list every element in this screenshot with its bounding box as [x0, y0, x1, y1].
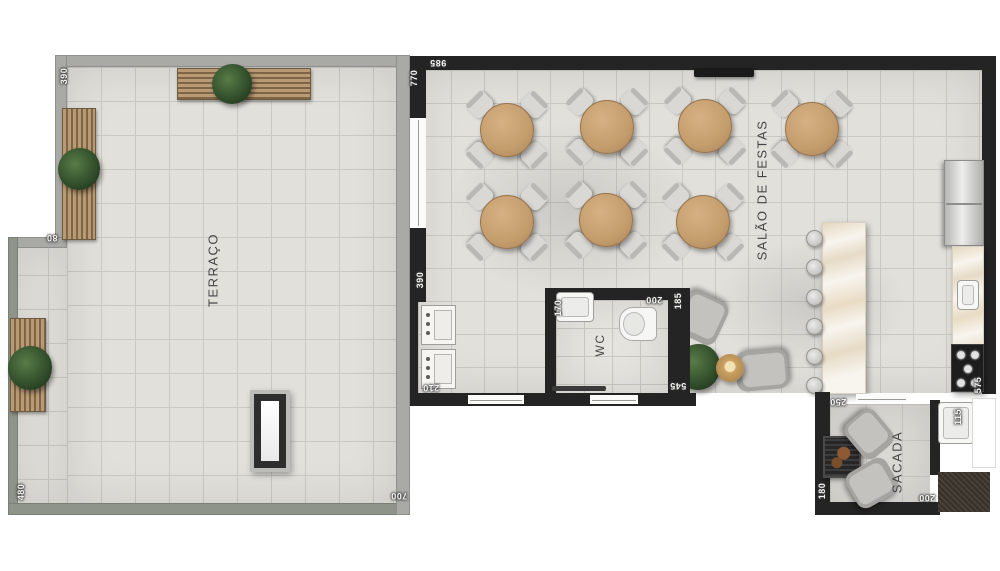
terrace-floor — [67, 67, 396, 503]
lounge-side-table — [716, 354, 744, 382]
dim-wc-sink: 170 — [553, 300, 563, 317]
dim-wc-right: 185 — [673, 293, 683, 310]
terrace-skylight — [250, 390, 290, 472]
planter-lower-left — [8, 346, 52, 390]
dim-terraco-top-left: 390 — [59, 68, 69, 85]
terrace-salon-glass-door — [410, 118, 426, 228]
dim-salao-top: 985 — [430, 58, 447, 68]
dim-wc-top: 200 — [646, 295, 663, 305]
salon-wall-left-upper — [410, 56, 426, 118]
wc-label: WC — [593, 334, 607, 357]
salon-wall-right — [982, 56, 996, 394]
sacada-label: SACADA — [890, 431, 905, 493]
dim-hall-left: 390 — [415, 272, 425, 289]
dim-lavabo: 210 — [423, 383, 440, 393]
sacada-wall-bottom — [815, 502, 940, 515]
salon-label: SALÃO DE FESTAS — [755, 120, 770, 261]
terrace-label: TERRAÇO — [206, 233, 221, 307]
terrace-wall-right — [396, 55, 410, 515]
dim-wc-bottom: 545 — [670, 381, 687, 391]
dim-sacada-sink: 115 — [953, 409, 963, 425]
wc-door-opening — [590, 395, 638, 404]
floor-plan: TERRAÇO SALÃO DE FESTAS WC SACADA 390 77… — [0, 0, 1000, 571]
sacada-column — [972, 398, 996, 468]
dim-sacada-top: 250 — [830, 397, 847, 407]
refrigerator — [944, 160, 984, 246]
sacada-door — [856, 394, 908, 403]
dim-terraco-step: 80 — [46, 233, 57, 243]
wc-toilet — [619, 307, 657, 341]
hall-wall-left — [410, 302, 418, 394]
dim-salao-left: 770 — [409, 70, 419, 87]
hall-window — [468, 395, 524, 404]
wall-tv — [694, 68, 754, 77]
dim-sacada-bottom: 200 — [919, 493, 936, 503]
dim-sacada-left: 180 — [817, 483, 827, 500]
sacada-doormat — [938, 472, 990, 512]
island-counter — [822, 222, 866, 394]
dim-terraco-bottom: 700 — [391, 491, 408, 501]
dim-terraco-left: 480 — [16, 484, 26, 501]
salon-wall-left-mid — [410, 228, 426, 302]
planter-top — [212, 64, 252, 104]
kitchen-sink — [957, 280, 979, 310]
terrace-wall-bottom — [8, 503, 410, 515]
dim-kitchen-bottom: 575 — [973, 377, 983, 394]
planter-left — [58, 148, 100, 190]
wc-grab-bar — [552, 386, 606, 391]
lavabo-counter-1 — [421, 305, 456, 345]
